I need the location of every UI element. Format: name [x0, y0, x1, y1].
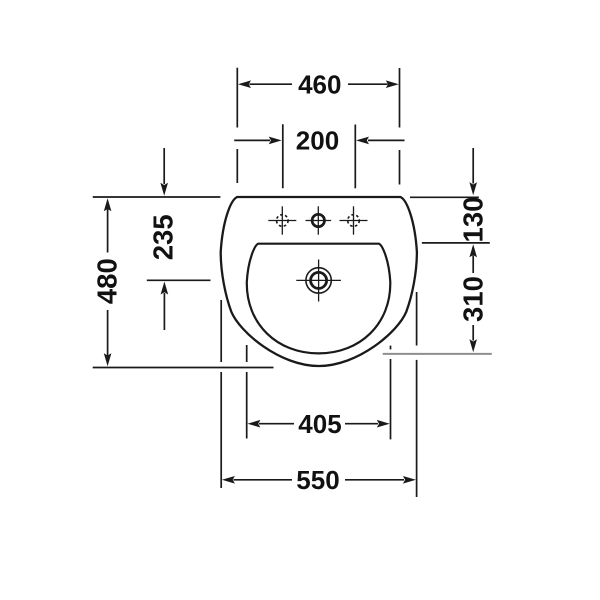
svg-text:310: 310 — [458, 276, 489, 322]
svg-text:200: 200 — [296, 126, 339, 156]
svg-text:550: 550 — [296, 465, 339, 495]
svg-text:480: 480 — [92, 258, 123, 304]
svg-text:405: 405 — [298, 409, 341, 439]
svg-text:235: 235 — [148, 214, 179, 260]
svg-text:460: 460 — [298, 70, 341, 100]
svg-text:130: 130 — [458, 197, 489, 243]
